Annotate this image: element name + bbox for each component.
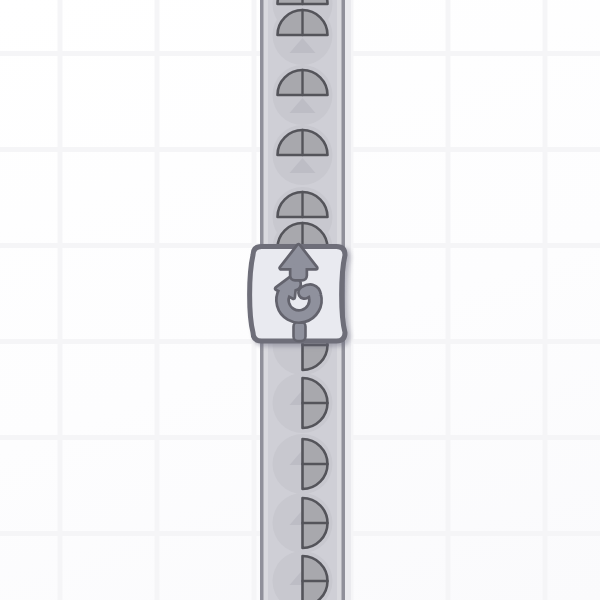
rotator-building[interactable]: [250, 246, 345, 342]
input-notch: [294, 322, 306, 341]
scene-canvas: [0, 0, 600, 600]
shape-item: [278, 0, 328, 4]
game-viewport: [0, 0, 600, 600]
